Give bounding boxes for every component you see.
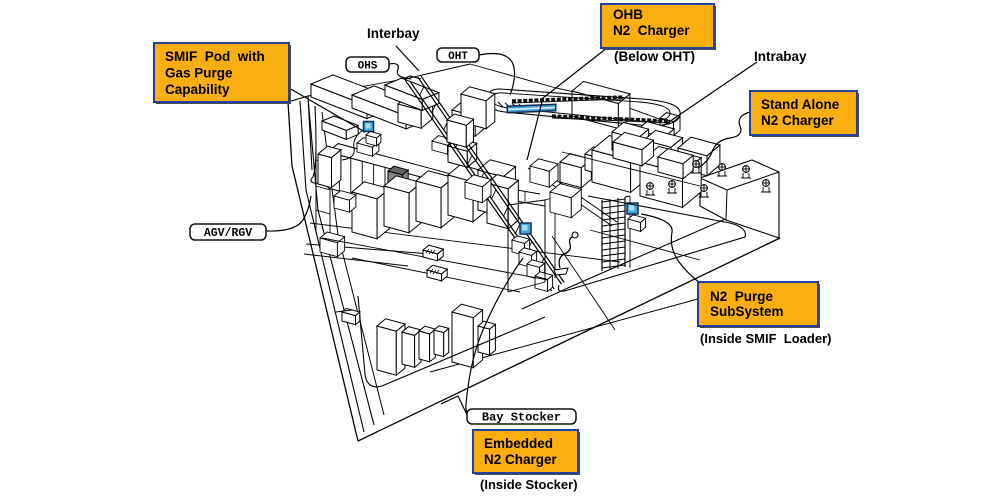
svg-text:N2 Purge: N2 Purge xyxy=(710,289,774,304)
svg-text:Gas Purge: Gas Purge xyxy=(165,66,233,81)
svg-text:OHT: OHT xyxy=(448,51,468,63)
svg-text:(Below OHT): (Below OHT) xyxy=(614,49,695,64)
svg-text:Interbay: Interbay xyxy=(367,26,420,41)
svg-text:Intrabay: Intrabay xyxy=(754,49,807,64)
svg-text:AGV/RGV: AGV/RGV xyxy=(204,227,252,240)
svg-text:Embedded: Embedded xyxy=(484,436,553,451)
svg-text:N2 Charger: N2 Charger xyxy=(761,113,835,128)
svg-text:N2 Charger: N2 Charger xyxy=(613,23,690,38)
svg-text:OHS: OHS xyxy=(358,61,378,73)
svg-text:(Inside Stocker): (Inside Stocker) xyxy=(480,477,578,492)
svg-text:SubSystem: SubSystem xyxy=(710,304,784,319)
svg-text:N2 Charger: N2 Charger xyxy=(484,452,558,467)
svg-text:(Inside SMIF Loader): (Inside SMIF Loader) xyxy=(700,331,831,346)
svg-text:Stand Alone: Stand Alone xyxy=(761,97,840,112)
svg-text:Capability: Capability xyxy=(165,82,230,97)
svg-text:OHB: OHB xyxy=(613,7,643,22)
svg-text:Bay Stocker: Bay Stocker xyxy=(482,411,561,425)
svg-text:SMIF Pod with: SMIF Pod with xyxy=(165,49,265,64)
